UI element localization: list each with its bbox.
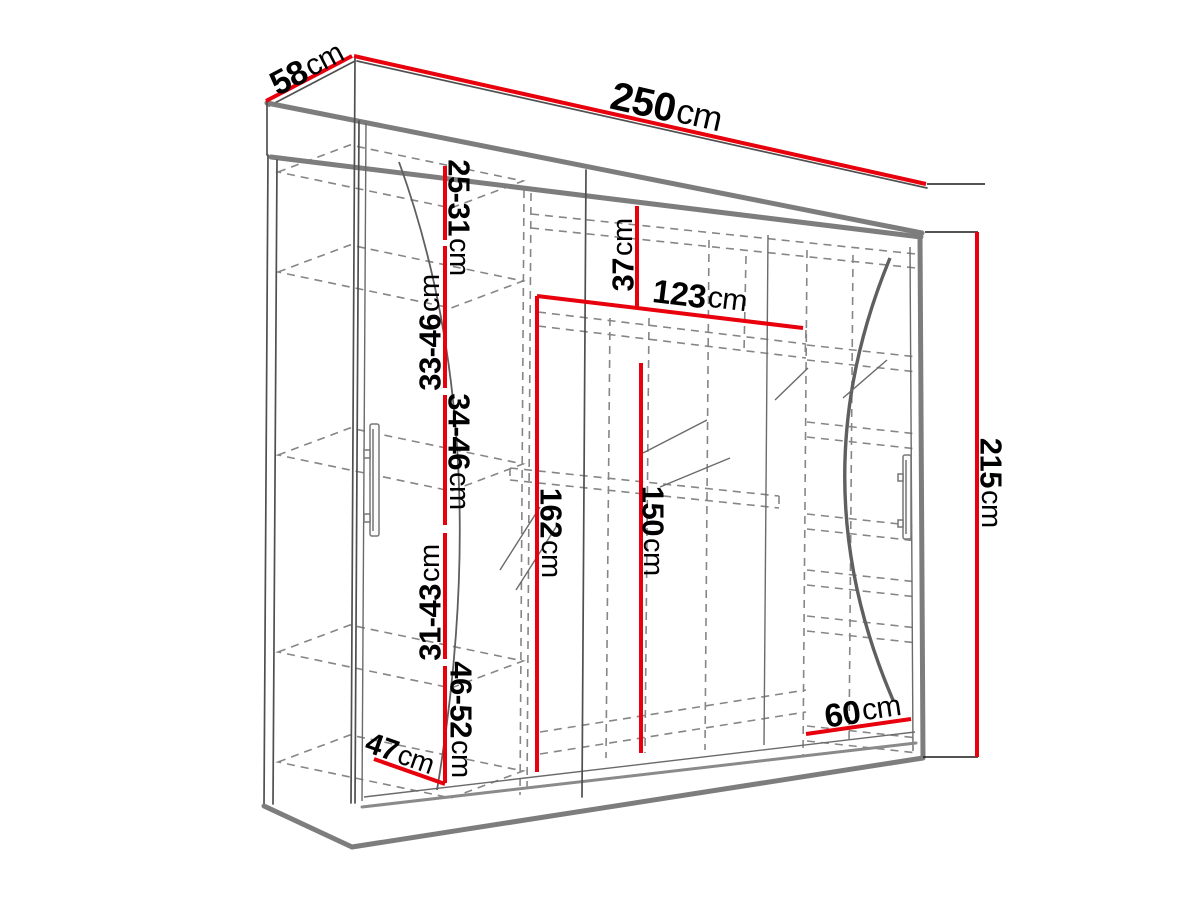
middle-shelf-dashed [538,312,806,358]
label-gap-33-46: 33-46 cm [413,274,448,390]
label-gap-46-52-value: 46-52 [444,661,479,738]
door-divider-left-middle [582,170,586,797]
right-door-handle [898,455,911,539]
label-gap-34-46: 34-46 cm [442,393,477,509]
bottom-left-edge [264,806,352,847]
label-gap-25-31-value: 25-31 [442,159,477,236]
label-37-value: 37 [606,258,641,291]
middle-floor-dashed [540,690,806,754]
label-gap-33-46-unit: cm [414,274,446,312]
label-gap-31-43-value: 31-43 [413,584,448,661]
label-150: 150 cm [636,486,671,576]
right-side-edge [920,235,923,757]
label-width-250-value: 250 [607,74,680,131]
label-162: 162 cm [534,488,569,578]
label-gap-46-52-unit: cm [445,740,477,778]
left-door-frame-edge [362,123,366,801]
label-150-value: 150 [636,486,671,536]
label-gap-34-46-unit: cm [443,472,475,510]
label-gap-31-43: 31-43 cm [413,544,448,660]
dimension-labels: 58 cm 250 cm 215 cm 25-31 cm 33-46 cm 34… [264,34,1009,781]
label-gap-25-31: 25-31 cm [442,159,477,275]
label-123-unit: cm [706,281,749,318]
label-37: 37 cm [606,218,641,291]
label-162-unit: cm [535,540,567,578]
right-door-mirror-curve [845,258,893,700]
label-123-value: 123 [651,272,709,315]
left-shelves-dashed [278,145,523,798]
label-60-value: 60 [822,693,863,735]
label-47: 47 cm [361,726,439,781]
label-height-215: 215 cm [974,438,1009,528]
label-width-250-unit: cm [673,91,726,139]
right-shelves-dashed [807,345,918,753]
label-162-value: 162 [534,488,569,538]
label-depth-58: 58 cm [264,34,351,104]
door-divider-middle-right [764,235,768,745]
bottom-front-edge [352,758,923,847]
label-gap-46-52: 46-52 cm [444,661,479,777]
diagram-canvas: 58 cm 250 cm 215 cm 25-31 cm 33-46 cm 34… [0,0,1200,900]
label-gap-33-46-value: 33-46 [413,314,448,391]
label-height-215-unit: cm [975,490,1007,528]
label-gap-31-43-unit: cm [414,544,446,582]
label-gap-25-31-unit: cm [443,238,475,276]
left-side-edge [264,155,277,806]
wardrobe-dimension-diagram: 58 cm 250 cm 215 cm 25-31 cm 33-46 cm 34… [0,0,1200,900]
left-door-handle [364,424,379,536]
label-height-215-value: 215 [974,438,1009,488]
dimension-lines [266,56,977,784]
label-60-unit: cm [860,689,903,727]
label-width-250: 250 cm [607,74,727,142]
label-gap-34-46-value: 34-46 [442,393,477,470]
label-150-unit: cm [637,538,669,576]
label-37-unit: cm [607,218,639,256]
